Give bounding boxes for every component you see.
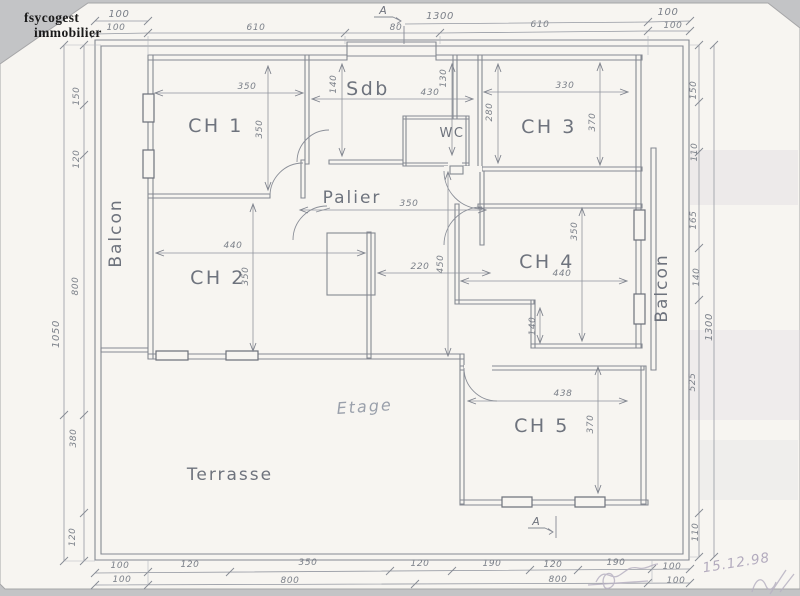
dim-palier-height: 450	[436, 255, 446, 274]
dim-ch4-height: 350	[570, 222, 580, 241]
dim-sdb-right: 130	[439, 69, 449, 88]
dim-bot1-120c: 120	[544, 560, 563, 570]
room-label-ch1: CH 1	[188, 115, 244, 137]
dim-right-150: 150	[689, 81, 699, 100]
dim-top2-100l: 100	[107, 23, 126, 33]
floor-plan-scan: A A 100 1300 100 100 610 80 610 100 150 …	[0, 0, 800, 596]
dim-left-1050: 1050	[51, 320, 62, 348]
room-label-balcon-left: Balcon	[106, 198, 126, 267]
room-label-ch5: CH 5	[514, 415, 570, 437]
dim-right-1300: 1300	[704, 313, 715, 341]
dim-palier-width: 350	[400, 199, 419, 209]
dim-ch1-width: 350	[238, 82, 257, 92]
room-label-balcon-right: Balcon	[652, 253, 672, 322]
dim-ch3-left: 280	[485, 103, 495, 122]
dim-right-110b: 110	[691, 523, 701, 542]
room-label-terrasse: Terrasse	[186, 465, 273, 485]
dim-top2-610r: 610	[531, 20, 550, 30]
room-label-ch4: CH 4	[519, 251, 575, 273]
dim-ch1-height: 350	[255, 120, 265, 139]
dim-ch5-width: 438	[554, 389, 573, 399]
dim-bot1-120b: 120	[411, 559, 430, 569]
dim-ch5-height: 370	[586, 415, 596, 434]
room-label-ch2: CH 2	[190, 267, 246, 289]
paper-sheet	[0, 3, 800, 589]
dim-top2-80: 80	[390, 23, 403, 33]
dim-bot2-100l: 100	[113, 575, 132, 585]
dim-palier-width2: 220	[411, 262, 430, 272]
dim-left-800: 800	[71, 277, 81, 296]
floor-label-etage: Etage	[336, 395, 393, 418]
dim-top-left-100: 100	[109, 9, 130, 20]
dim-top-1300: 1300	[426, 11, 454, 22]
section-letter-bottom: A	[531, 515, 540, 528]
dim-bot2-100r: 100	[667, 576, 686, 586]
dim-bot1-100r: 100	[663, 562, 682, 572]
room-label-ch3: CH 3	[521, 116, 577, 138]
dim-right-525: 525	[688, 373, 698, 392]
dim-left-380: 380	[69, 429, 79, 448]
room-label-sdb: Sdb	[346, 78, 390, 100]
room-label-palier: Palier	[323, 188, 382, 208]
section-letter-top: A	[378, 4, 387, 17]
dim-bot2-800l: 800	[281, 576, 300, 586]
dim-top2-100r: 100	[664, 21, 683, 31]
dim-ch3-width: 330	[556, 81, 575, 91]
logo-line2: immobilier	[34, 25, 102, 40]
dim-right-165: 165	[689, 211, 699, 230]
dim-right-110a: 110	[690, 143, 700, 162]
dim-top-right-100: 100	[658, 7, 679, 18]
dim-bot1-190a: 190	[483, 559, 502, 569]
dim-sdb-width: 430	[421, 88, 440, 98]
dim-bot1-120a: 120	[181, 560, 200, 570]
dim-sdb-left: 140	[329, 75, 339, 94]
dim-bot2-800r: 800	[549, 575, 568, 585]
dim-left-120a: 120	[72, 150, 82, 169]
floor-plan-drawing: A A 100 1300 100 100 610 80 610 100 150 …	[0, 0, 800, 596]
room-label-wc: WC	[440, 126, 465, 141]
dim-ch3-height: 370	[588, 113, 598, 132]
dim-ch4-nook: 140	[528, 317, 538, 336]
logo-line1: fsycogest	[24, 10, 79, 25]
dim-ch2-width: 440	[224, 241, 243, 251]
dim-bot1-100l: 100	[111, 561, 130, 571]
dim-left-120b: 120	[68, 528, 78, 547]
dim-left-150: 150	[72, 87, 82, 106]
dim-bot1-350: 350	[299, 558, 318, 568]
dim-right-140: 140	[692, 268, 702, 287]
dim-bot1-190b: 190	[607, 558, 626, 568]
dim-top2-610l: 610	[247, 23, 266, 33]
